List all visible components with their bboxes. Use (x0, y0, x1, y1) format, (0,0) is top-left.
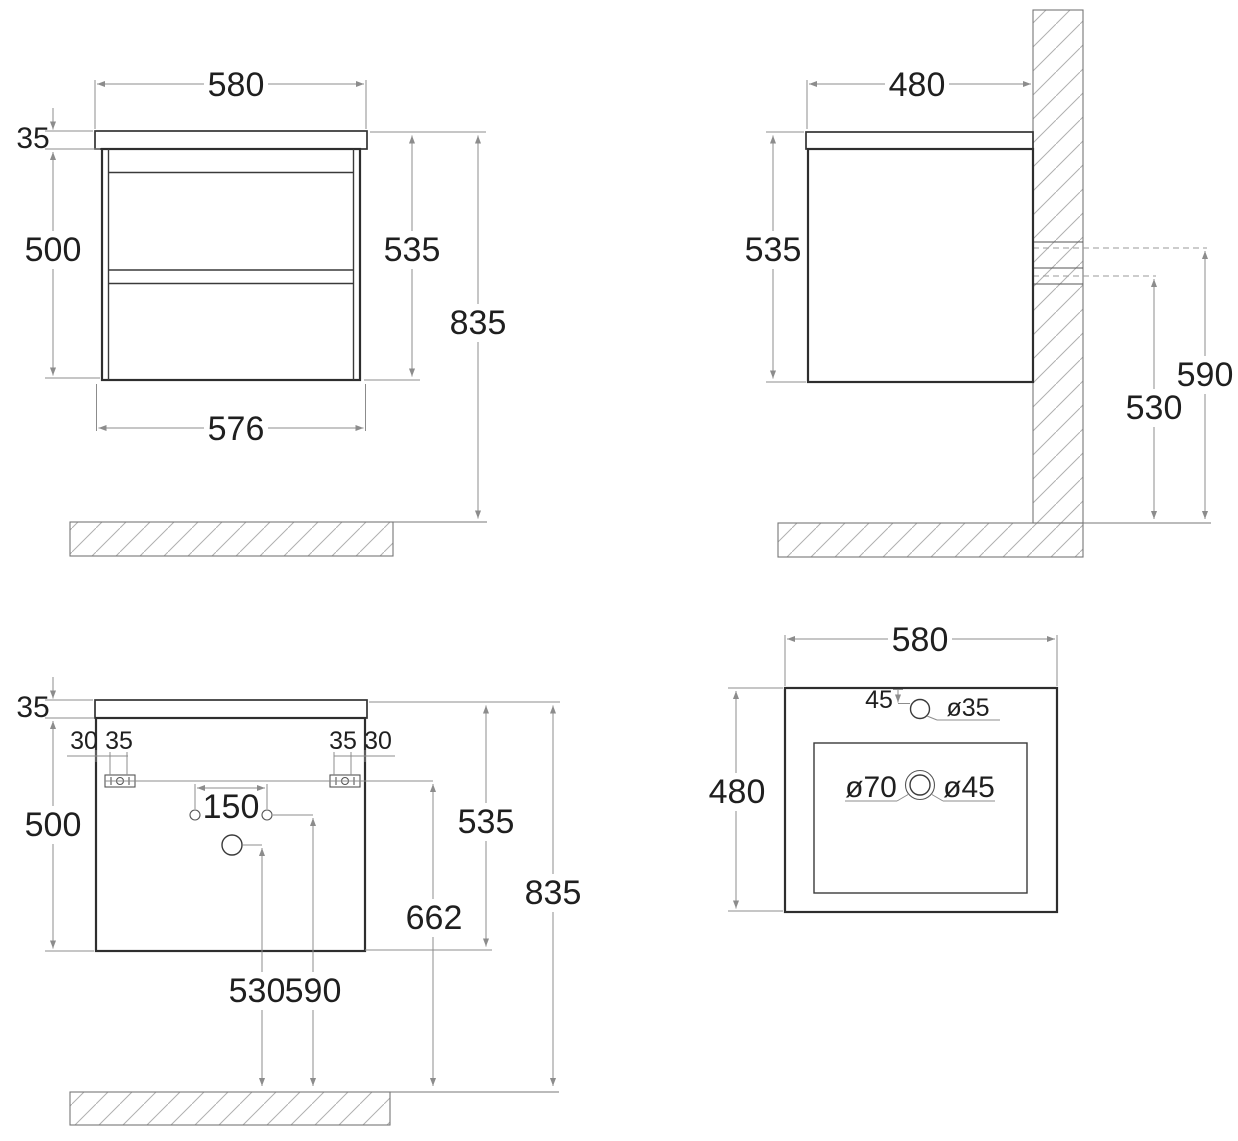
rear-body-height-label: 500 (25, 806, 82, 844)
front-view: 580 35 500 535 835 (16, 66, 507, 556)
top-tap-diameter-label: ø35 (946, 694, 989, 722)
rear-fixing-width-left-label: 35 (105, 727, 133, 755)
drain-hole-rear (222, 835, 242, 855)
top-drain-recess-label: ø70 (845, 771, 897, 804)
side-lower-fixing-label: 530 (1126, 389, 1183, 427)
floor-section-rear (70, 1092, 390, 1125)
front-width-bottom-label: 576 (208, 410, 265, 448)
rear-tap-holes-spacing-label: 150 (203, 788, 260, 826)
front-body-height-label: 500 (25, 231, 82, 269)
vanity-technical-drawing: 580 35 500 535 835 (0, 0, 1238, 1141)
top-basin-outline (814, 743, 1027, 893)
top-width-label: 580 (892, 621, 949, 659)
rear-counter-thickness-label: 35 (16, 691, 49, 724)
rear-tap-holes-height-label: 590 (285, 972, 342, 1010)
rear-drain-height-label: 530 (229, 972, 286, 1010)
rear-fixing-height-label: 662 (406, 899, 463, 937)
rear-fixing-offset-left-label: 30 (70, 727, 98, 755)
top-depth-label: 480 (709, 773, 766, 811)
rear-total-height-label: 835 (525, 874, 582, 912)
rear-fixing-offset-right-label: 30 (364, 727, 392, 755)
side-view: 480 535 590 530 (744, 10, 1234, 557)
side-upper-fixing-label: 590 (1177, 356, 1234, 394)
top-tap-offset-label: 45 (865, 686, 893, 714)
top-view: 580 480 45 ø35 ø70 ø45 (707, 621, 1057, 912)
front-cabinet-body (102, 149, 360, 380)
side-countertop (806, 132, 1033, 149)
side-depth-label: 480 (889, 66, 946, 104)
top-drain-hole-label: ø45 (943, 771, 995, 804)
front-counter-thickness-label: 35 (16, 122, 49, 155)
floor-section-front (70, 522, 393, 556)
side-cabinet-body (808, 149, 1033, 382)
floor-section-side (778, 523, 1083, 557)
tap-hole-left (190, 810, 200, 820)
front-width-top-label: 580 (208, 66, 265, 104)
rear-carcass-height-label: 535 (458, 803, 515, 841)
technical-drawing-page: 580 35 500 535 835 (0, 0, 1238, 1141)
tap-hole-right (262, 810, 272, 820)
side-carcass-height-label: 535 (745, 231, 802, 269)
leader-line (897, 794, 909, 801)
leader-line (927, 716, 937, 720)
rear-view: 35 500 30 35 (16, 677, 582, 1125)
leader-line (931, 794, 943, 801)
wall-section (1033, 10, 1083, 523)
front-carcass-height-label: 535 (384, 231, 441, 269)
rear-countertop (95, 700, 367, 718)
front-total-height-label: 835 (450, 304, 507, 342)
front-countertop (95, 131, 367, 149)
rear-fixing-width-right-label: 35 (329, 727, 357, 755)
tap-hole-top-view (911, 700, 930, 719)
drain-hole-top-view (910, 775, 930, 795)
